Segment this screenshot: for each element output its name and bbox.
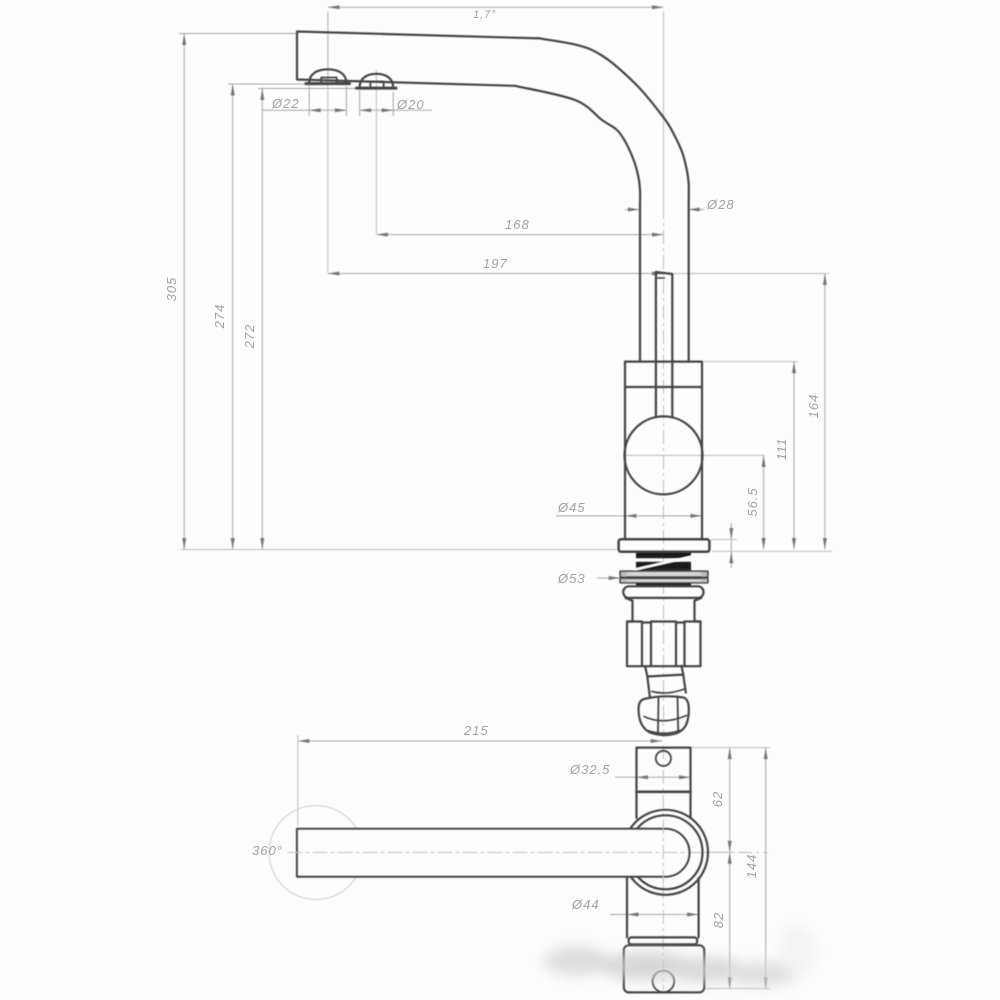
svg-text:111: 111 — [774, 438, 789, 461]
svg-text:Ø22: Ø22 — [271, 96, 300, 111]
svg-text:82: 82 — [711, 912, 726, 928]
svg-text:1,7°: 1,7° — [473, 9, 497, 21]
svg-text:Ø45: Ø45 — [557, 500, 586, 515]
svg-text:62: 62 — [710, 791, 725, 807]
svg-text:164: 164 — [806, 394, 821, 419]
svg-text:Ø20: Ø20 — [396, 97, 425, 112]
svg-text:Ø53: Ø53 — [557, 571, 586, 586]
svg-text:56.5: 56.5 — [745, 487, 760, 516]
svg-text:272: 272 — [242, 324, 257, 350]
svg-text:305: 305 — [164, 277, 179, 302]
svg-text:215: 215 — [463, 723, 489, 738]
svg-text:274: 274 — [212, 304, 227, 330]
svg-text:Ø44: Ø44 — [571, 897, 600, 912]
svg-text:168: 168 — [505, 217, 530, 232]
svg-text:Ø28: Ø28 — [706, 197, 735, 212]
svg-text:360°: 360° — [252, 843, 283, 858]
svg-text:144: 144 — [744, 854, 759, 879]
svg-text:Ø32.5: Ø32.5 — [569, 762, 610, 777]
svg-text:197: 197 — [483, 256, 508, 271]
